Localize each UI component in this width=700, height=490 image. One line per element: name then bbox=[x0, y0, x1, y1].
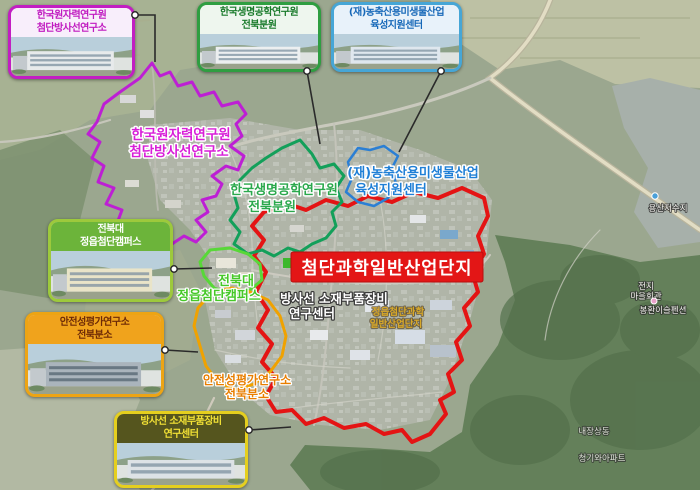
satellite-map-infographic: 첨단과학일반산업단지 한국원자력연구원 첨단방사선연구소 한국생명공학연구원 전… bbox=[0, 0, 700, 490]
map-label-pension: 봉환이슬펜션 bbox=[640, 305, 687, 316]
callout-nuclear-institute: 한국원자력연구원 첨단방사선연구소 bbox=[8, 5, 135, 79]
callout-radiation-photo bbox=[117, 443, 245, 485]
callout-nuclear-photo bbox=[11, 37, 132, 76]
map-label-kit-line1: 안전성평가연구소 bbox=[203, 372, 291, 387]
building-photo-illustration bbox=[200, 34, 318, 69]
callout-title-line2: 육성지원센터 bbox=[335, 20, 458, 33]
callout-title-line1: 전북대 bbox=[52, 224, 169, 237]
building-photo-illustration bbox=[334, 34, 459, 69]
callout-jbnu-photo bbox=[51, 251, 170, 299]
map-label-jbnu-line2: 정읍첨단캠퍼스 bbox=[177, 288, 261, 304]
callout-title-line2: 정읍첨단캠퍼스 bbox=[52, 237, 169, 250]
callout-title-line1: 방사선 소재부품장비 bbox=[118, 416, 244, 429]
map-label-village1: 전지 bbox=[638, 281, 654, 292]
building-photo-illustration bbox=[51, 251, 170, 299]
map-label-kit-line2: 전북분소 bbox=[225, 386, 269, 401]
callout-radiation-title: 방사선 소재부품장비 연구센터 bbox=[117, 414, 245, 443]
map-label-district: 내장상동 bbox=[578, 426, 609, 437]
map-label-bio-line1: 한국생명공학연구원 bbox=[230, 182, 338, 198]
map-label-nuclear-line2: 첨단방사선연구소 bbox=[129, 143, 229, 160]
callout-title-line1: 한국원자력연구원 bbox=[12, 10, 131, 23]
map-label-micro-line1: (재)농축산용미생물산업 bbox=[347, 165, 478, 181]
map-label-rad-line1: 방사선 소재부품장비 bbox=[280, 291, 388, 306]
callout-bio-title: 한국생명공학연구원 전북분원 bbox=[200, 5, 318, 34]
callout-bio-photo bbox=[200, 34, 318, 69]
callout-title-line2: 전북분원 bbox=[201, 20, 317, 33]
building-photo-illustration bbox=[11, 37, 132, 76]
callout-safety-title: 안전성평가연구소 전북분소 bbox=[28, 315, 161, 344]
callout-title-line2: 전북분소 bbox=[29, 330, 160, 343]
callout-safety-photo bbox=[28, 344, 161, 394]
industrial-complex-label: 첨단과학일반산업단지 bbox=[291, 252, 483, 282]
callout-title-line2: 첨단방사선연구소 bbox=[12, 23, 131, 36]
map-label-apartment: 청기와아파트 bbox=[579, 453, 626, 464]
map-label-rad-line2: 연구센터 bbox=[289, 306, 335, 321]
callout-radiation-center: 방사선 소재부품장비 연구센터 bbox=[114, 411, 248, 488]
callout-microbe-photo bbox=[334, 34, 459, 69]
map-label-complex-small-line2: 일반산업단지 bbox=[370, 318, 422, 330]
callout-title-line1: 안전성평가연구소 bbox=[29, 317, 160, 330]
callout-bio-institute: 한국생명공학연구원 전북분원 bbox=[197, 2, 321, 72]
callout-jbnu-title: 전북대 정읍첨단캠퍼스 bbox=[51, 222, 170, 251]
industrial-complex-label-text: 첨단과학일반산업단지 bbox=[302, 258, 473, 279]
callout-title-line1: (재)농축산용미생물산업 bbox=[335, 7, 458, 20]
map-label-nuclear-line1: 한국원자력연구원 bbox=[131, 127, 230, 143]
reservoir-marker-icon bbox=[652, 193, 658, 199]
callout-title-line1: 한국생명공학연구원 bbox=[201, 7, 317, 20]
map-label-bio-line2: 전북분원 bbox=[248, 199, 296, 215]
building-photo-illustration bbox=[117, 443, 245, 485]
callout-nuclear-title: 한국원자력연구원 첨단방사선연구소 bbox=[11, 8, 132, 37]
callout-microbe-title: (재)농축산용미생물산업 육성지원센터 bbox=[334, 5, 459, 34]
building-photo-illustration bbox=[28, 344, 161, 394]
callout-safety-institute: 안전성평가연구소 전북분소 bbox=[25, 312, 164, 397]
map-label-complex-small-line1: 정읍첨단과학 bbox=[372, 306, 425, 318]
map-label-micro-line2: 육성지원센터 bbox=[355, 182, 427, 198]
callout-microbe-center: (재)농축산용미생물산업 육성지원센터 bbox=[331, 2, 462, 72]
callout-jbnu-campus: 전북대 정읍첨단캠퍼스 bbox=[48, 219, 173, 302]
map-label-reservoir: 용산저수지 bbox=[648, 203, 687, 214]
callout-title-line2: 연구센터 bbox=[118, 429, 244, 442]
pension-marker-icon bbox=[651, 298, 657, 304]
map-label-jbnu-line1: 전북대 bbox=[218, 273, 254, 289]
